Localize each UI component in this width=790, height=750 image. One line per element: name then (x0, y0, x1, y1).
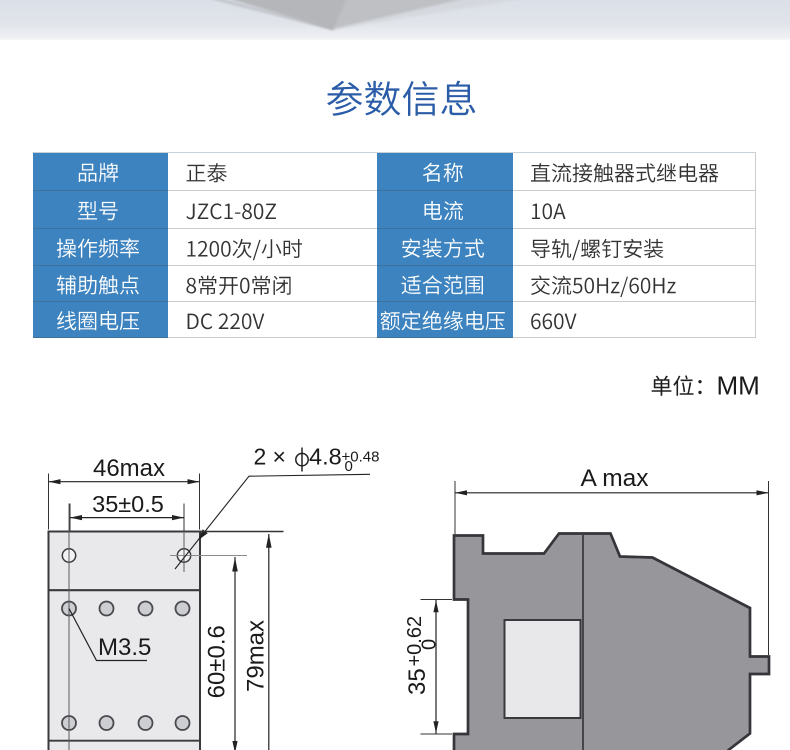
svg-text:35±0.5: 35±0.5 (92, 491, 164, 517)
svg-text:0: 0 (345, 458, 353, 475)
svg-text:MM: MM (716, 370, 759, 400)
svg-text:4.8: 4.8 (309, 444, 342, 470)
svg-text:2: 2 (254, 444, 267, 470)
svg-text:35: 35 (404, 668, 431, 695)
svg-text:0: 0 (419, 639, 441, 650)
svg-text:46max: 46max (93, 455, 165, 482)
svg-text:M3.5: M3.5 (98, 634, 151, 661)
svg-text:×: × (273, 444, 286, 470)
svg-text:79max: 79max (243, 620, 270, 692)
svg-text:60±0.6: 60±0.6 (204, 625, 231, 698)
svg-text:A max: A max (580, 465, 648, 492)
